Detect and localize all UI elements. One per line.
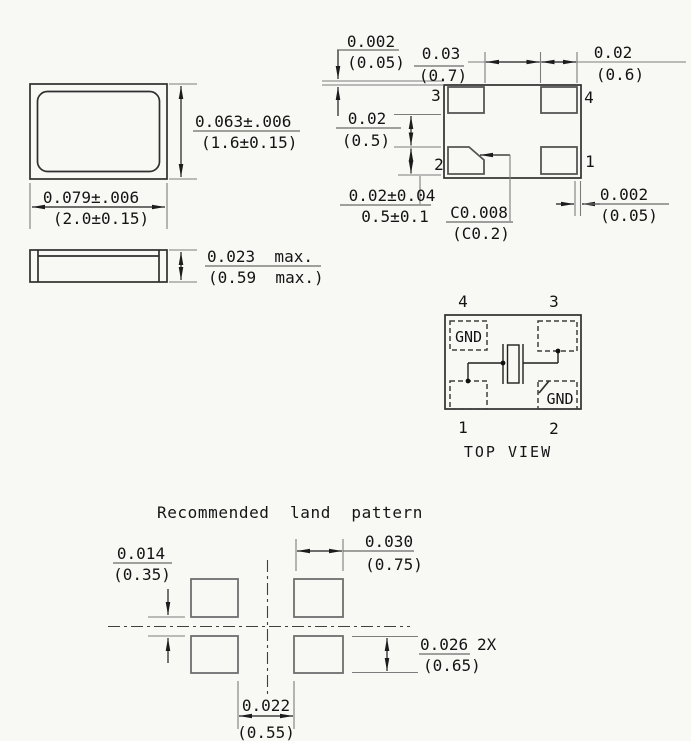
bv-chamfer-mm-label: (C0.2) — [452, 224, 510, 243]
lp-pad-height-mm-label: (0.65) — [423, 656, 481, 675]
bv-right-offset-inch-label: 0.002 — [600, 185, 648, 204]
bv-pad-width-inch-label: 0.02 — [594, 43, 633, 62]
side-thickness-inch-label: 0.023 max. — [207, 247, 313, 266]
bv-pad-gap-v-mm-label: (0.5) — [342, 131, 390, 150]
pad-2-chamfered — [448, 147, 484, 174]
lp-pad-width-mm-label: (0.75) — [365, 555, 423, 574]
bottom-view: 3 4 2 1 0.002 (0.05) 0.03 (0.7) 0.02 (0.… — [322, 32, 686, 243]
lp-pad-height-dim-lines — [352, 637, 418, 673]
land-pattern-title: Recommended land pattern — [157, 503, 423, 522]
pad-1 — [541, 147, 577, 174]
side-thickness-dim-lines — [169, 250, 197, 282]
land-pattern: Recommended land pattern 0.014 (0.35) 0.… — [108, 503, 497, 741]
bv-pad-gap-v-inch-label: 0.02 — [348, 109, 387, 128]
bv-top-offset-mm-label: (0.05) — [347, 53, 405, 72]
tv-pin4-label: 4 — [458, 292, 468, 311]
lp-pad-top-left — [191, 579, 238, 617]
package-lid-outline — [38, 92, 160, 172]
side-outline — [30, 250, 167, 282]
lp-gap-h-mm-label: (0.55) — [237, 723, 295, 741]
front-height-dim-lines — [169, 84, 197, 179]
drawing-sheet: 0.063±.006 (1.6±0.15) 0.079±.006 (2.0±0.… — [0, 0, 691, 741]
bv-chamfer-inch-label: C0.008 — [450, 203, 508, 222]
bv-top-dim-lines — [468, 52, 686, 83]
front-view: 0.063±.006 (1.6±0.15) 0.079±.006 (2.0±0.… — [30, 84, 300, 229]
bv-pad-width-mm-label: (0.6) — [596, 65, 644, 84]
bottom-outline — [444, 85, 581, 178]
bv-pad-gap-mm-label: (0.7) — [419, 66, 467, 85]
bv-pad-height-inch-label: 0.02±0.04 — [349, 186, 436, 205]
bv-pin3-label: 3 — [431, 86, 441, 105]
tv-pin3-label: 3 — [549, 292, 559, 311]
tv-pad-1 — [450, 381, 487, 409]
lp-pad-height-inch-label: 0.026 — [420, 635, 468, 654]
bv-top-offset-inch-label: 0.002 — [347, 32, 395, 51]
pad-4 — [541, 87, 577, 113]
top-view-caption: TOP VIEW — [464, 443, 552, 461]
lp-pad-bottom-left — [191, 636, 238, 673]
crystal-package-drawing: 0.063±.006 (1.6±0.15) 0.079±.006 (2.0±0.… — [0, 0, 691, 741]
bv-pad-height-mm-label: 0.5±0.1 — [361, 207, 428, 226]
lp-pad-width-inch-label: 0.030 — [365, 532, 413, 551]
front-height-mm-label: (1.6±0.15) — [201, 133, 297, 152]
bv-pad-gap-inch-label: 0.03 — [422, 44, 461, 63]
front-height-inch-label: 0.063±.006 — [195, 112, 291, 131]
tv-wiring — [466, 349, 561, 384]
tv-gnd-bottom-right-label: GND — [546, 390, 573, 408]
lp-pad-bottom-right — [294, 636, 343, 673]
lp-pad-height-qty-label: 2X — [477, 635, 497, 654]
tv-pad-3 — [538, 321, 577, 351]
side-view: 0.023 max. (0.59 max.) — [30, 247, 324, 287]
bv-pin1-label: 1 — [585, 152, 595, 171]
side-details — [38, 250, 159, 282]
lp-pad-top-right — [294, 579, 343, 617]
lp-gap-v-inch-label: 0.014 — [117, 544, 165, 563]
side-thickness-mm-label: (0.59 max.) — [208, 268, 324, 287]
bv-pin4-label: 4 — [584, 88, 594, 107]
front-width-inch-label: 0.079±.006 — [43, 188, 139, 207]
bv-pin2-label: 2 — [434, 155, 444, 174]
lp-gap-v-mm-label: (0.35) — [113, 565, 171, 584]
crystal-symbol — [503, 344, 523, 384]
pad-3 — [448, 87, 484, 113]
package-outline — [30, 84, 167, 179]
lp-gap-h-inch-label: 0.022 — [242, 696, 290, 715]
tv-pin1-label: 1 — [458, 418, 468, 437]
bv-right-offset-mm-label: (0.05) — [600, 206, 658, 225]
tv-pin2-label: 2 — [549, 419, 559, 438]
top-view: GND GND 4 3 1 2 TOP VIEW — [445, 292, 581, 461]
front-width-mm-label: (2.0±0.15) — [53, 209, 149, 228]
tv-gnd-top-left-label: GND — [455, 328, 482, 346]
